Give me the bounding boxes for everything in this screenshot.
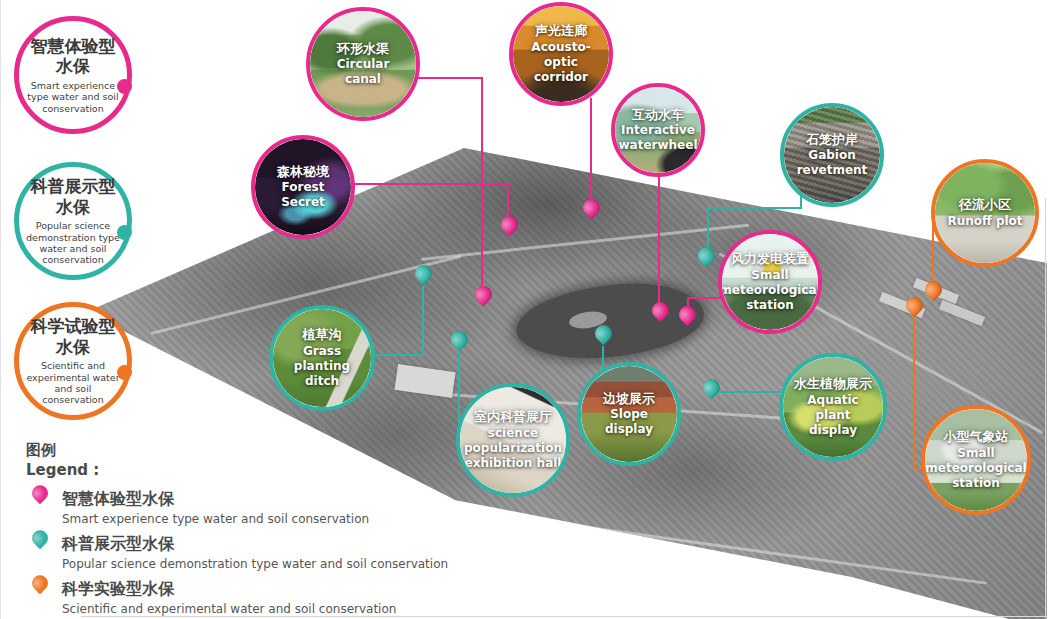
callout-label: 小型气象站Small meteorological station: [921, 429, 1031, 490]
badge-title-en: Popular science demonstration type water…: [23, 220, 123, 266]
connector-line: [712, 391, 784, 393]
map-solar-panel: [939, 300, 985, 327]
connector-line: [913, 318, 915, 470]
callout-label: 径流小区Runoff plot: [937, 197, 1032, 228]
callout-name-zh: 径流小区: [947, 197, 1022, 213]
category-badge-exp: 科学试验型水保Scientific and experimental water…: [14, 302, 132, 420]
callout-label: 边坡展示Slope display: [581, 391, 677, 437]
callout-name-zh: 森林秘境: [265, 164, 341, 180]
callout-circular-canal: 环形水渠Circular canal: [306, 7, 420, 121]
callout-name-zh: 水生植物展示: [793, 376, 873, 392]
legend-item-row: 科学实验型水保: [26, 578, 448, 600]
callout-label: 森林秘境Forest Secret: [255, 164, 351, 210]
badge-title-zh: 智慧体验型: [31, 36, 116, 56]
connector-line: [590, 98, 592, 208]
callout-aquatic-plant-display: 水生植物展示Aquatic plant display: [779, 353, 887, 461]
callout-label: 互动水车Interactive waterwheel: [611, 107, 705, 153]
callout-name-en: Small meteorological station: [925, 446, 1026, 491]
callout-runoff-plot: 径流小区Runoff plot: [931, 159, 1039, 267]
badge-title-zh: 科学试验型: [31, 316, 116, 336]
connector-line: [658, 176, 660, 312]
callout-name-zh: 风力发电装置: [719, 251, 820, 267]
callout-name-en: Slope display: [591, 407, 667, 437]
connector-line: [422, 286, 424, 356]
map-road: [561, 522, 987, 585]
connector-line: [687, 297, 723, 299]
callout-name-en: Small meteorological station: [719, 268, 820, 313]
callout-label: 环形水渠Circular canal: [310, 41, 416, 87]
callout-name-zh: 植草沟: [283, 327, 361, 343]
legend-pin-icon-exp: [29, 572, 52, 595]
legend-item-en: Smart experience type water and soil con…: [62, 510, 448, 528]
legend-item-row: 科普展示型水保: [26, 533, 448, 555]
connector-line: [708, 207, 802, 209]
callout-name-en: Forest Secret: [265, 180, 341, 210]
legend-item-en: Scientific and experimental water and so…: [62, 600, 448, 618]
category-badge-smart: 智慧体验型水保Smart experience type water and s…: [14, 16, 132, 134]
callout-gabion-revetment: 石笼护岸Gabion revetment: [780, 103, 884, 207]
callout-slope-display: 边坡展示Slope display: [577, 362, 681, 466]
frame-right-border: [1045, 198, 1046, 618]
legend-item-smart: 智慧体验型水保Smart experience type water and s…: [26, 488, 448, 528]
callout-label: 植草沟Grass planting ditch: [273, 327, 371, 388]
legend: 图例 Legend : 智慧体验型水保Smart experience type…: [26, 441, 448, 619]
callout-name-zh: 环形水渠: [320, 41, 406, 57]
connector-line: [458, 352, 460, 425]
callout-name-en: Gabion revetment: [794, 148, 870, 178]
category-badge-demo: 科普展示型水保Popular science demonstration typ…: [14, 162, 132, 280]
callout-name-en: Grass planting ditch: [283, 344, 361, 389]
infographic-canvas: 环形水渠Circular canal声光连廊Acousto-optic corr…: [0, 0, 1050, 619]
legend-item-en: Popular science demonstration type water…: [62, 555, 448, 573]
legend-item-zh: 智慧体验型水保: [62, 489, 174, 510]
connector-line: [354, 183, 508, 185]
callout-name-zh: 边坡展示: [591, 391, 667, 407]
callout-name-zh: 室内科普展厅: [464, 409, 562, 425]
connector-line: [417, 77, 483, 79]
callout-label: 风力发电装置Small meteorological station: [718, 251, 822, 312]
callout-science-popularization-exhibition-hall: 室内科普展厅science popularization exhibition …: [456, 383, 570, 497]
callout-name-zh: 石笼护岸: [794, 132, 870, 148]
connector-line: [507, 183, 509, 219]
legend-item-row: 智慧体验型水保: [26, 488, 448, 510]
badge-title-en: Smart experience type water and soil con…: [23, 80, 123, 114]
legend-item-zh: 科学实验型水保: [62, 579, 174, 600]
legend-title-en: Legend :: [26, 461, 448, 481]
badge-tail-dot: [117, 79, 132, 94]
map-lake: [514, 279, 707, 364]
callout-name-en: science popularization exhibition hall: [464, 426, 562, 471]
badge-tail-dot: [117, 225, 132, 240]
legend-pin-icon-demo: [29, 527, 52, 550]
connector-line: [373, 354, 423, 356]
callout-name-en: Aquatic plant display: [793, 393, 873, 438]
map-building: [394, 364, 455, 398]
badge-title-zh: 科普展示型: [31, 176, 116, 196]
legend-item-zh: 科普展示型水保: [62, 534, 174, 555]
callout-name-zh: 小型气象站: [925, 429, 1026, 445]
badge-title-zh: 水保: [56, 56, 90, 76]
callout-grass-planting-ditch: 植草沟Grass planting ditch: [269, 305, 375, 411]
callout-name-en: Interactive waterwheel: [619, 123, 698, 153]
callout-label: 声光连廊Acousto-optic corridor: [513, 23, 609, 84]
callout-name-en: Circular canal: [320, 57, 406, 87]
legend-pin-icon-smart: [29, 482, 52, 505]
badge-title-zh: 水保: [56, 337, 90, 357]
badge-title-en: Scientific and experimental water and so…: [23, 360, 123, 406]
legend-item-demo: 科普展示型水保Popular science demonstration typ…: [26, 533, 448, 573]
callout-label: 室内科普展厅science popularization exhibition …: [456, 409, 570, 470]
callout-interactive-waterwheel: 互动水车Interactive waterwheel: [611, 83, 705, 177]
legend-title-zh: 图例: [26, 441, 448, 461]
badge-tail-dot: [117, 365, 132, 380]
badge-title-zh: 水保: [56, 197, 90, 217]
connector-line: [481, 77, 483, 295]
callout-label: 石笼护岸Gabion revetment: [784, 132, 880, 178]
callout-small-meteorological-station: 风力发电装置Small meteorological station: [718, 230, 822, 334]
callout-forest-secret: 森林秘境Forest Secret: [251, 135, 355, 239]
callout-label: 水生植物展示Aquatic plant display: [783, 376, 883, 437]
callout-name-zh: 互动水车: [619, 107, 698, 123]
legend-items: 智慧体验型水保Smart experience type water and s…: [26, 488, 448, 618]
legend-item-exp: 科学实验型水保Scientific and experimental water…: [26, 578, 448, 618]
callout-small-meteorological-station: 小型气象站Small meteorological station: [921, 405, 1031, 515]
callout-name-en: Acousto-optic corridor: [523, 40, 599, 85]
callout-acousto-optic-corridor: 声光连廊Acousto-optic corridor: [509, 2, 613, 106]
callout-name-en: Runoff plot: [947, 214, 1022, 229]
callout-name-zh: 声光连廊: [523, 23, 599, 39]
